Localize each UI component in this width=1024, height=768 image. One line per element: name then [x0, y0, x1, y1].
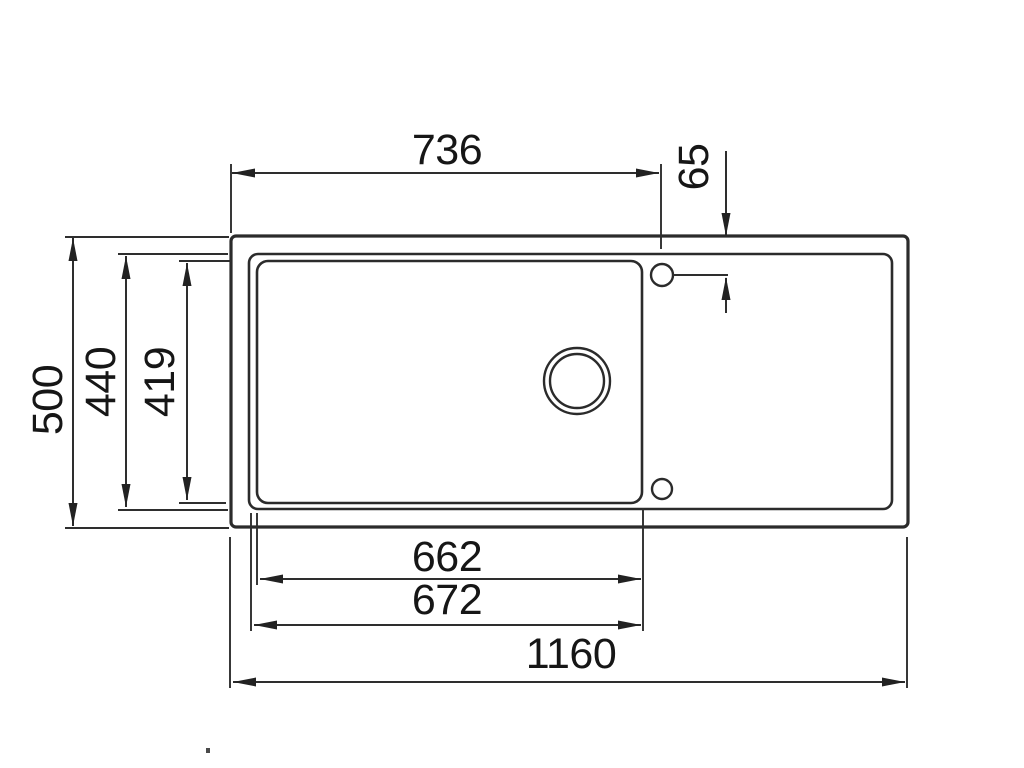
- dimension-1160: 1160: [230, 537, 907, 688]
- dimension-419: 419: [136, 261, 231, 503]
- arrowhead-up: [722, 277, 731, 300]
- sink-body: [231, 236, 908, 527]
- dimension-label-440: 440: [77, 347, 125, 417]
- arrowhead-left: [260, 575, 283, 584]
- drain-hole-inner: [550, 354, 604, 408]
- arrowhead-right: [618, 575, 641, 584]
- sink-outer-edge: [231, 236, 908, 527]
- dimension-label-419: 419: [136, 347, 184, 417]
- dimension-736: 736: [231, 126, 661, 249]
- dimension-65: 65: [670, 144, 731, 313]
- dimension-label-65: 65: [670, 144, 718, 191]
- dimension-label-672: 672: [412, 576, 482, 624]
- arrowhead-up: [122, 256, 131, 279]
- arrowhead-up: [69, 238, 78, 261]
- arrowhead-down: [122, 484, 131, 507]
- tap-hole-top: [651, 264, 673, 286]
- sink-inner-rim: [249, 254, 892, 509]
- arrowhead-left: [232, 169, 255, 178]
- dimension-label-662: 662: [412, 533, 482, 581]
- sink-bowl: [257, 261, 642, 503]
- arrowhead-right: [618, 621, 641, 630]
- arrowhead-left: [233, 678, 256, 687]
- dimension-label-1160: 1160: [526, 630, 616, 678]
- dimension-label-500: 500: [24, 365, 72, 435]
- arrowhead-down: [69, 503, 78, 526]
- arrowhead-right: [882, 678, 905, 687]
- technical-drawing-canvas: 736 65 500 440: [0, 0, 1024, 768]
- tap-hole-bottom: [652, 479, 672, 499]
- dimension-label-736: 736: [412, 126, 482, 174]
- arrowhead-left: [254, 621, 277, 630]
- print-speck: [206, 748, 210, 753]
- arrowhead-right: [636, 169, 659, 178]
- drain-hole-outer: [544, 348, 610, 414]
- arrowhead-up: [183, 263, 192, 286]
- arrowhead-down: [183, 477, 192, 500]
- sink-dimension-drawing: 736 65 500 440: [0, 0, 1024, 768]
- arrowhead-down: [722, 213, 731, 236]
